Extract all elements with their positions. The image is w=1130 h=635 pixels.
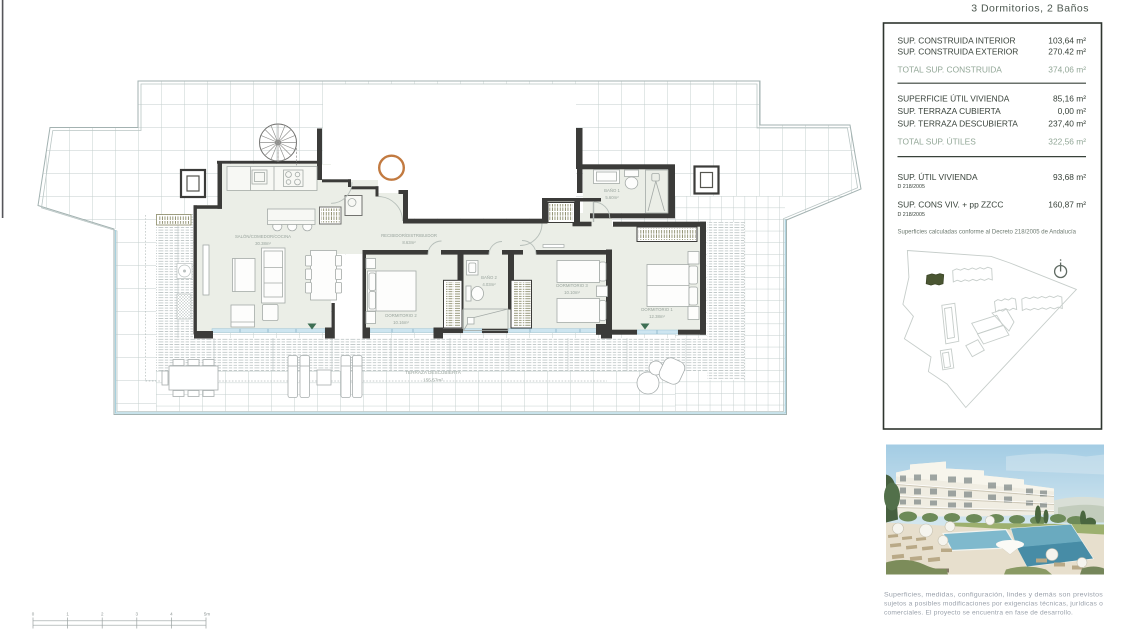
svg-text:DORMITORIO 3: DORMITORIO 3: [556, 283, 588, 288]
svg-text:SUPERFICIE ÚTIL VIVIENDA: SUPERFICIE ÚTIL VIVIENDA: [898, 94, 1010, 104]
svg-text:SUP. TERRAZA DESCUBIERTA: SUP. TERRAZA DESCUBIERTA: [898, 119, 1019, 129]
svg-text:SALÓN/COMEDOR/COCINA: SALÓN/COMEDOR/COCINA: [235, 234, 291, 239]
svg-text:85,16 m²: 85,16 m²: [1053, 94, 1086, 104]
svg-text:SUP. CONS VIV. + pp ZZCC: SUP. CONS VIV. + pp ZZCC: [898, 200, 1004, 210]
svg-text:160,87 m²: 160,87 m²: [1048, 200, 1086, 210]
svg-text:5m: 5m: [204, 612, 211, 617]
svg-text:5.60m²: 5.60m²: [605, 195, 619, 200]
svg-text:93,68 m²: 93,68 m²: [1053, 172, 1086, 182]
svg-text:374,06 m²: 374,06 m²: [1048, 65, 1086, 75]
svg-text:RECIBIDOR/DISTRIBUIDOR: RECIBIDOR/DISTRIBUIDOR: [381, 233, 437, 238]
svg-text:237,40 m²: 237,40 m²: [1048, 119, 1086, 129]
svg-text:1: 1: [66, 612, 69, 617]
svg-text:10.10m²: 10.10m²: [564, 290, 580, 295]
svg-text:D 218/2005: D 218/2005: [898, 212, 925, 218]
svg-text:155.57m²: 155.57m²: [423, 378, 443, 383]
svg-text:DORMITORIO 2: DORMITORIO 2: [385, 313, 417, 318]
svg-text:Superficies calculadas conform: Superficies calculadas conforme al Decre…: [898, 230, 1077, 236]
svg-text:10.16m²: 10.16m²: [393, 320, 409, 325]
svg-text:2: 2: [101, 612, 104, 617]
svg-text:SUP. TERRAZA CUBIERTA: SUP. TERRAZA CUBIERTA: [898, 106, 1002, 116]
svg-text:270.42 m²: 270.42 m²: [1048, 47, 1086, 57]
svg-text:BAÑO 1: BAÑO 1: [604, 188, 620, 193]
svg-text:BAÑO 2: BAÑO 2: [481, 275, 497, 280]
svg-text:comerciales. El proyecto se en: comerciales. El proyecto se encuentra en…: [884, 610, 1073, 617]
svg-text:4: 4: [170, 612, 173, 617]
svg-text:0: 0: [32, 612, 35, 617]
svg-text:DORMITORIO 1: DORMITORIO 1: [641, 307, 673, 312]
svg-text:TERRAZA DESCUBIERTA: TERRAZA DESCUBIERTA: [405, 370, 462, 375]
svg-text:SUP. CONSTRUIDA INTERIOR: SUP. CONSTRUIDA INTERIOR: [898, 36, 1016, 46]
svg-text:Superficies, medidas, configur: Superficies, medidas, configuración, lin…: [884, 592, 1104, 599]
svg-text:SUP. ÚTIL VIVIENDA: SUP. ÚTIL VIVIENDA: [898, 172, 978, 182]
svg-text:3: 3: [136, 612, 139, 617]
svg-text:103,64 m²: 103,64 m²: [1048, 36, 1086, 46]
svg-text:3 Dormitorios, 2 Baños: 3 Dormitorios, 2 Baños: [971, 3, 1089, 15]
svg-text:SUP. CONSTRUIDA EXTERIOR: SUP. CONSTRUIDA EXTERIOR: [898, 47, 1019, 57]
svg-text:30.38m²: 30.38m²: [255, 241, 271, 246]
svg-text:12.38m²: 12.38m²: [649, 314, 665, 319]
svg-text:TOTAL SUP. CONSTRUIDA: TOTAL SUP. CONSTRUIDA: [898, 65, 1003, 75]
svg-text:TOTAL SUP. ÚTILES: TOTAL SUP. ÚTILES: [898, 137, 977, 147]
svg-text:322,56 m²: 322,56 m²: [1048, 137, 1086, 147]
svg-text:4.03m²: 4.03m²: [482, 282, 496, 287]
svg-text:sujetos a posibles modificacio: sujetos a posibles modificaciones por ex…: [884, 601, 1103, 608]
svg-text:D 218/2005: D 218/2005: [898, 184, 925, 190]
svg-text:0,00 m²: 0,00 m²: [1058, 106, 1087, 116]
svg-text:8.63m²: 8.63m²: [402, 240, 416, 245]
